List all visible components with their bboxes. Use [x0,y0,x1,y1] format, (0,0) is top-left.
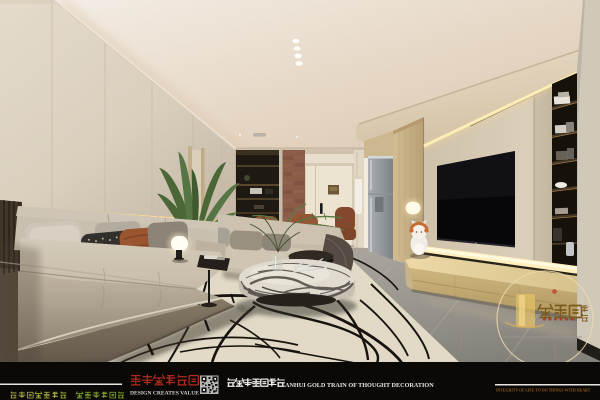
svg-text:DESIGN CREATES VALUE: DESIGN CREATES VALUE [130,391,199,397]
svg-text:INTEGRITY OF LIFE TO DO THINGS: INTEGRITY OF LIFE TO DO THINGS WITH HEAR… [496,389,591,393]
svg-text:ANHUI GOLD TRAIN OF THOUGHT DE: ANHUI GOLD TRAIN OF THOUGHT DECORATION [285,382,434,389]
